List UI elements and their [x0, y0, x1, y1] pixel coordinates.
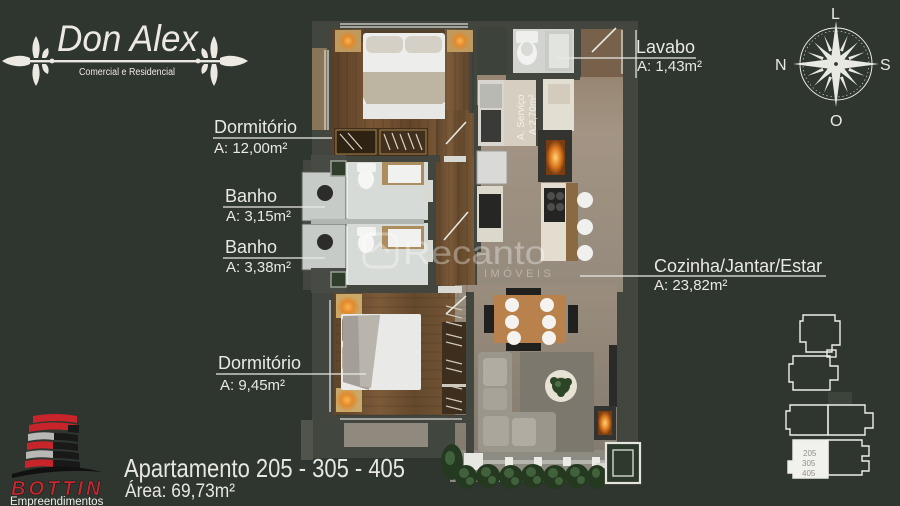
svg-text:Comercial e Residencial: Comercial e Residencial — [79, 67, 175, 78]
svg-text:S: S — [880, 57, 891, 74]
svg-text:A: 12,00m²: A: 12,00m² — [214, 140, 287, 157]
svg-text:A: 9,45m²: A: 9,45m² — [220, 377, 285, 394]
svg-text:Área: 69,73m²: Área: 69,73m² — [125, 481, 235, 502]
svg-text:A: 1,43m²: A: 1,43m² — [637, 58, 702, 75]
svg-text:A: 3,15m²: A: 3,15m² — [226, 208, 291, 225]
svg-text:Banho: Banho — [225, 237, 277, 257]
svg-text:N: N — [775, 57, 787, 74]
svg-text:A: 23,82m²: A: 23,82m² — [654, 277, 727, 294]
svg-text:Cozinha/Jantar/Estar: Cozinha/Jantar/Estar — [654, 256, 822, 276]
svg-text:Dormitório: Dormitório — [214, 117, 297, 137]
svg-text:Don Alex: Don Alex — [57, 18, 199, 59]
svg-text:205: 205 — [803, 449, 817, 458]
svg-text:Lavabo: Lavabo — [636, 37, 695, 57]
svg-text:Banho: Banho — [225, 186, 277, 206]
svg-text:405: 405 — [802, 469, 816, 478]
svg-text:L: L — [831, 6, 840, 23]
svg-text:A. Serviço: A. Serviço — [516, 94, 527, 140]
svg-text:Dormitório: Dormitório — [218, 353, 301, 373]
svg-text:Empreendimentos: Empreendimentos — [10, 496, 104, 506]
svg-text:Recanto: Recanto — [403, 234, 546, 271]
svg-text:Apartamento 205 - 305 - 405: Apartamento 205 - 305 - 405 — [124, 453, 405, 483]
svg-text:IMÓVEIS: IMÓVEIS — [484, 267, 554, 280]
svg-text:A:2,70m²: A:2,70m² — [528, 94, 539, 135]
svg-text:305: 305 — [802, 459, 816, 468]
svg-text:O: O — [830, 113, 842, 130]
svg-text:A: 3,38m²: A: 3,38m² — [226, 259, 291, 276]
